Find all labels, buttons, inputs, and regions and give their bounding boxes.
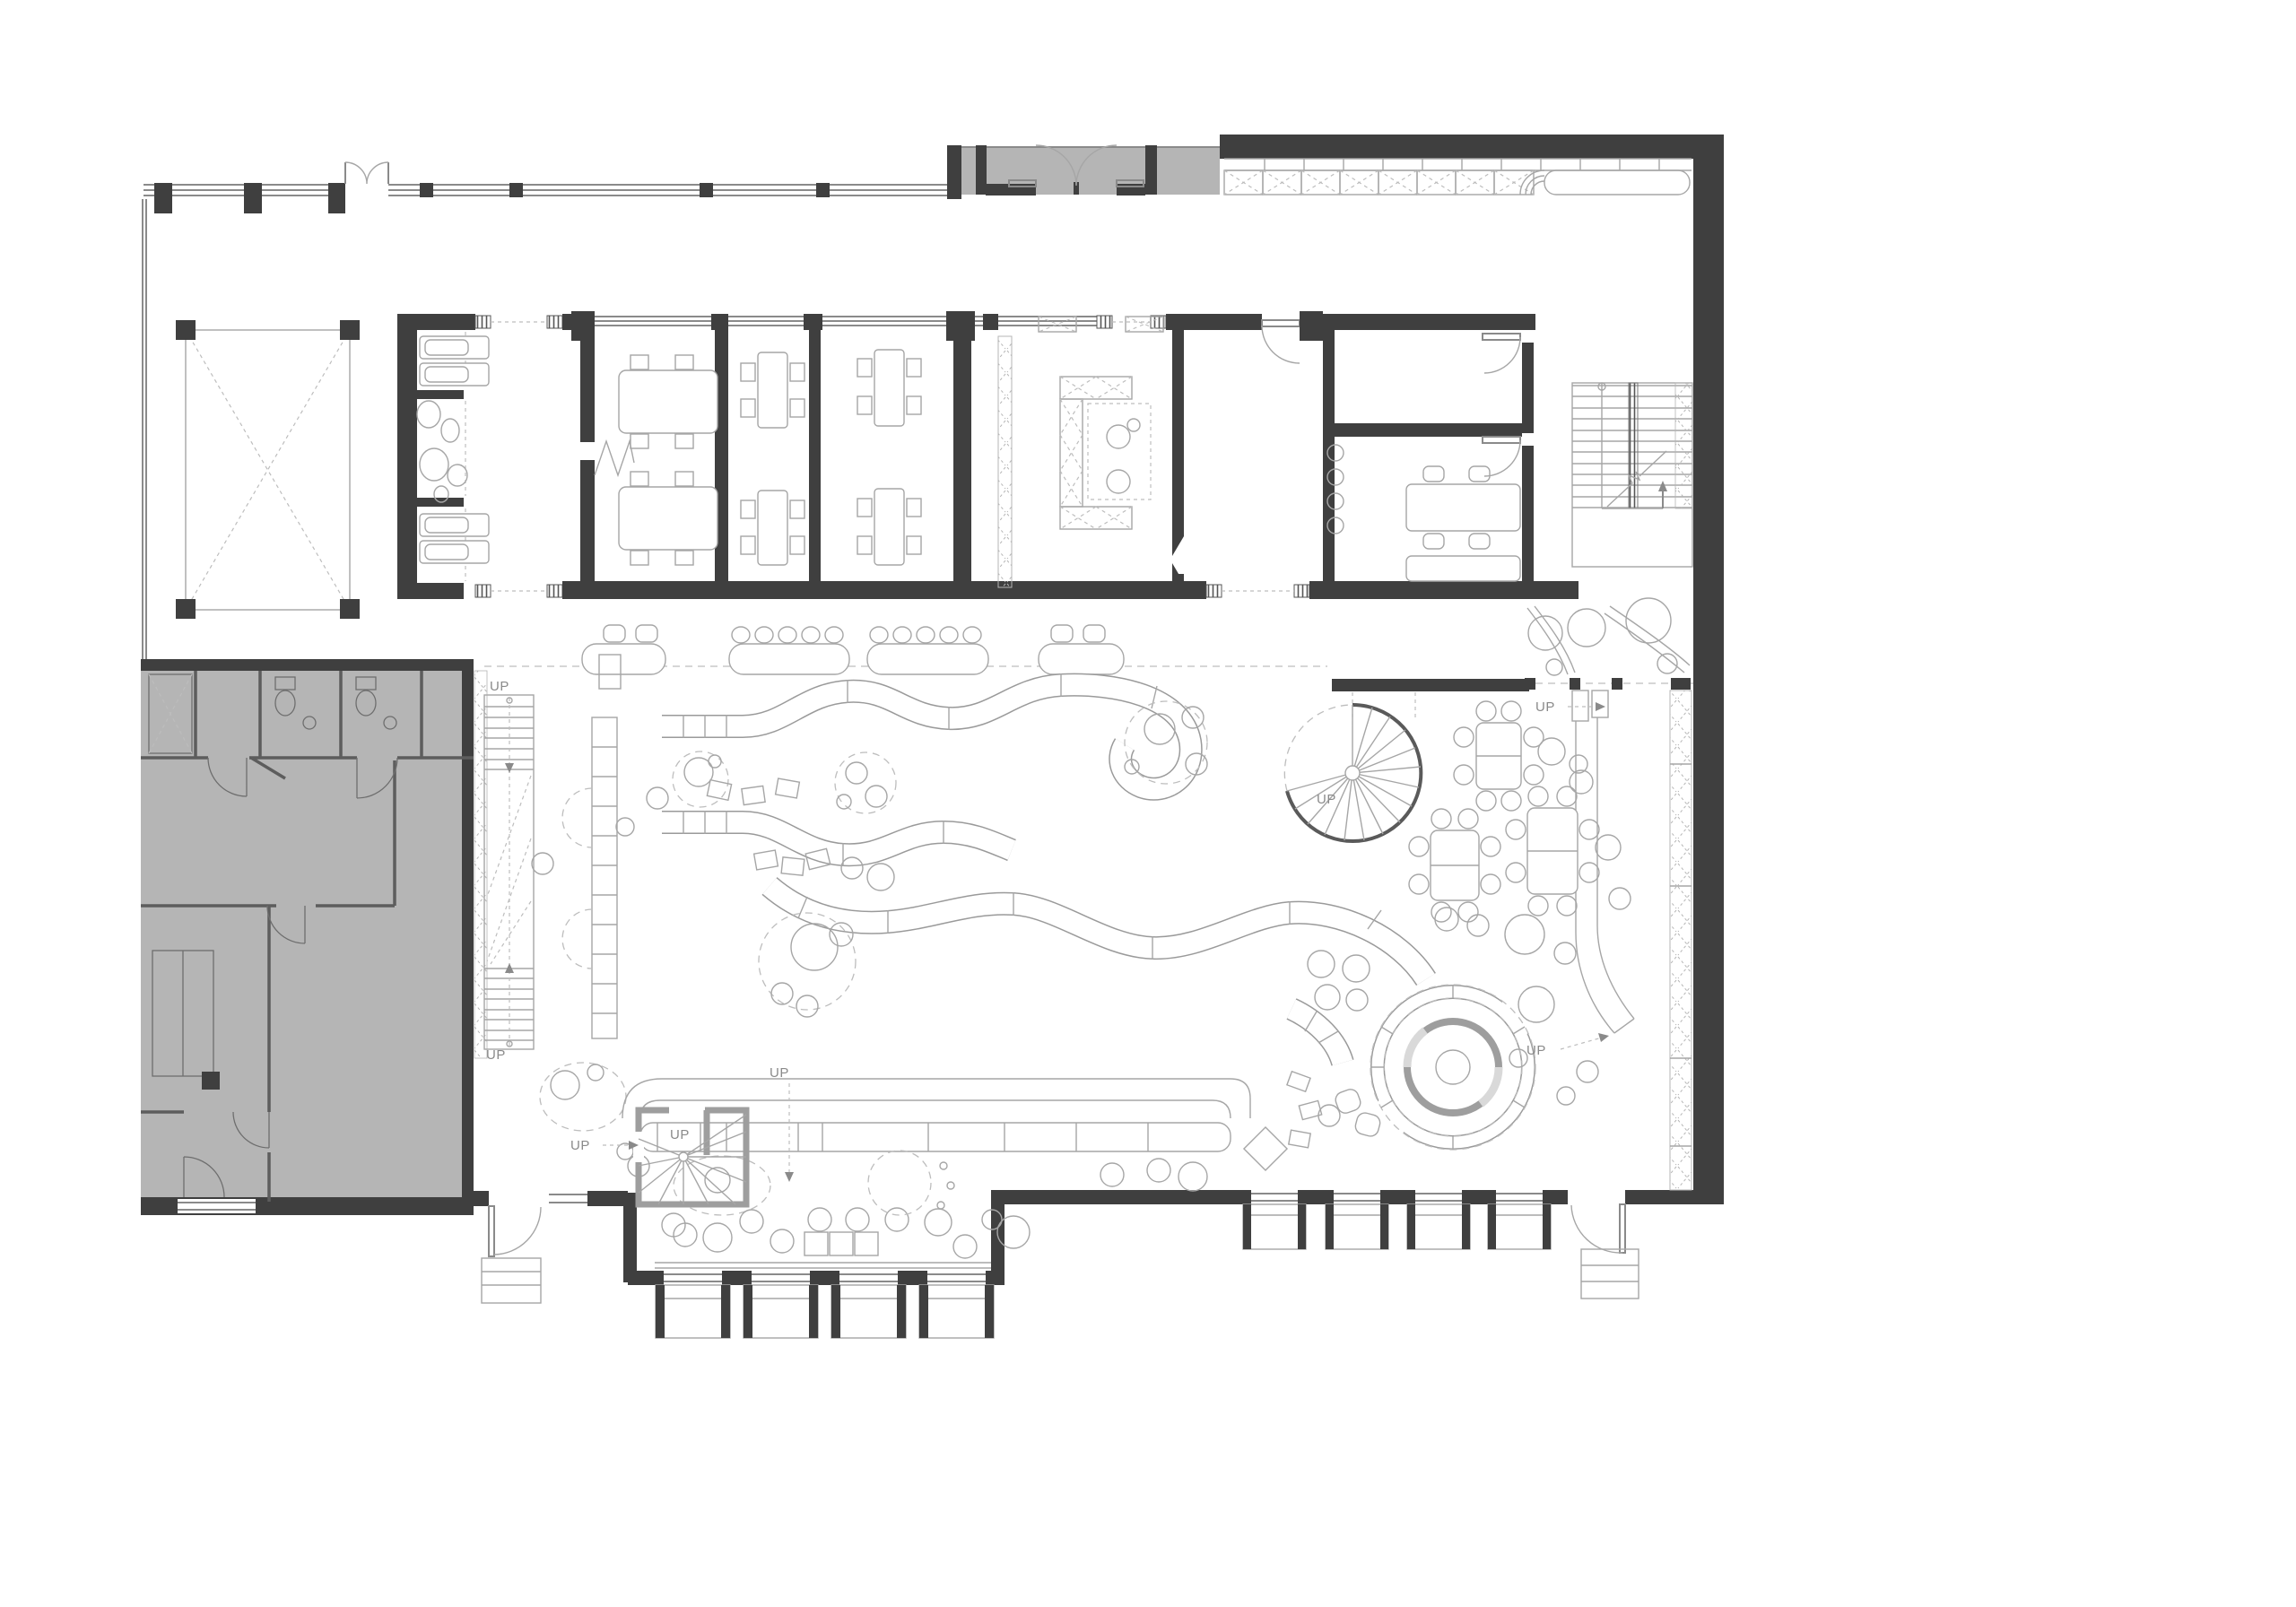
main-u-stair <box>1572 383 1692 567</box>
up-label-ramp-top: UP <box>1535 699 1555 715</box>
east-bays <box>1243 1204 1551 1249</box>
skylight-void <box>176 320 360 619</box>
hall-square-tables <box>1409 701 1599 922</box>
hall-poufs <box>1244 738 1631 1170</box>
storage-room-door <box>1483 334 1520 373</box>
se-exit-door <box>1571 1204 1639 1299</box>
up-label-left-stair-top: UP <box>490 679 509 694</box>
floor-plan-drawing: UP UP UP UP UP UP UP UP <box>0 0 2296 1607</box>
rooms-band <box>397 311 1578 599</box>
right-curved-ramp <box>1572 691 1692 1190</box>
open-hall <box>474 625 1631 1215</box>
left-straight-stair <box>474 671 534 1058</box>
up-label-left-stair-bottom: UP <box>486 1047 506 1063</box>
central-spiral-stair <box>1284 692 1421 841</box>
shelving-strip <box>562 655 634 1038</box>
wavy-bench-upper <box>662 673 1191 789</box>
meeting-room-a <box>595 355 717 565</box>
meeting-room-c <box>857 350 921 565</box>
east-meeting-room <box>1406 437 1520 581</box>
kitchen <box>998 317 1184 587</box>
service-counter <box>1224 159 1692 195</box>
entry-vestibule <box>961 145 1220 195</box>
void-benches <box>582 625 1124 674</box>
wavy-bench-lower <box>662 811 1012 866</box>
passage-door <box>1262 320 1300 363</box>
bar-zone <box>603 1079 1250 1268</box>
sw-exit-door <box>482 1206 541 1303</box>
up-label-bar-spiral-entry: UP <box>570 1138 590 1153</box>
meeting-room-b <box>741 352 804 565</box>
entry-double-door <box>345 162 388 184</box>
wavy-bench-south <box>770 886 1426 1063</box>
floor-plan-canvas: UP UP UP UP UP UP UP UP <box>0 0 2296 1607</box>
hall-rugs-lower <box>532 848 894 1215</box>
counter-front <box>1520 170 1690 195</box>
up-label-bar-spiral: UP <box>670 1127 690 1142</box>
up-label-spiral-stair: UP <box>1317 792 1336 807</box>
up-label-bar-entry: UP <box>770 1065 789 1081</box>
up-label-ramp-bottom: UP <box>1526 1043 1546 1058</box>
garden-nook <box>1332 598 1693 691</box>
existing-annex <box>141 659 474 1215</box>
counter-cabinets <box>1224 170 1534 195</box>
bar-bays <box>656 1285 994 1338</box>
